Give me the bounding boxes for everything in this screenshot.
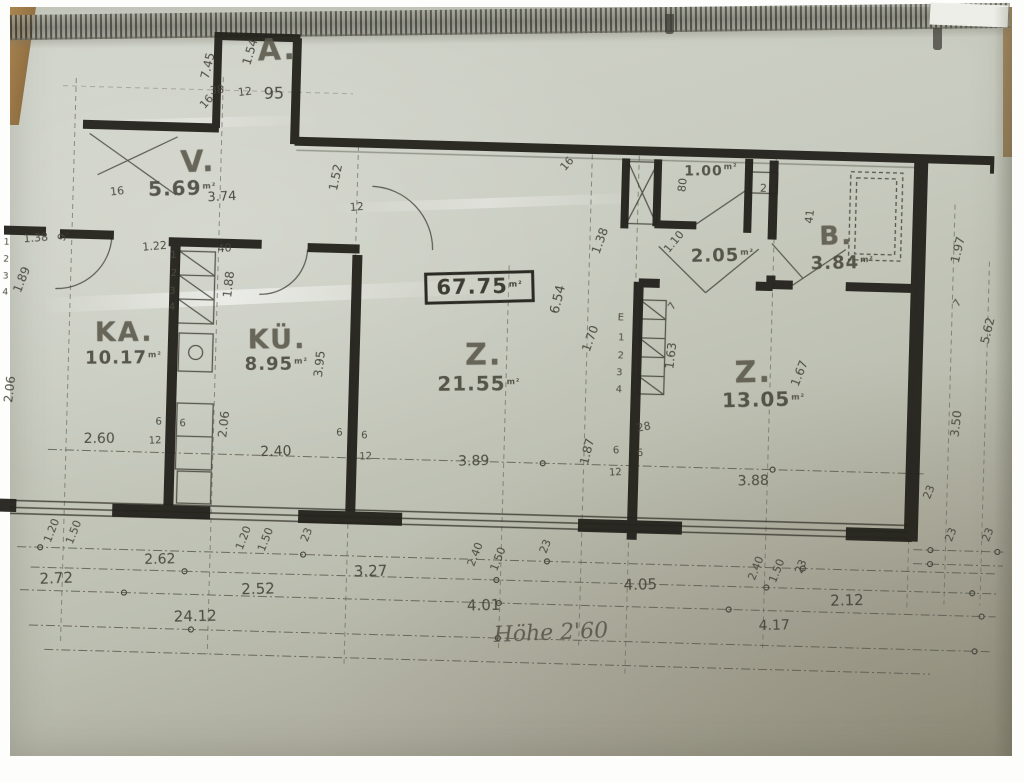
dim-4: 4 [615,385,622,395]
dim-1.97: 1.97 [949,235,967,264]
dim-2.06: 2.06 [2,375,17,403]
dim-4.05: 4.05 [623,577,657,593]
dim-12: 12 [349,201,364,213]
dim-1.70: 1.70 [580,324,600,353]
handwritten-note-höhe-2'60: Höhe 2'60 [493,620,608,647]
room-label-z.: Z. [734,358,772,389]
dim-6: 6 [637,449,644,459]
dim-9.: 9. [56,229,71,243]
dim-1.67: 1.67 [789,359,810,388]
dim-16: 16 [558,155,576,173]
dim-6: 6 [361,431,368,441]
dim-6.54: 6.54 [549,284,568,315]
dim-3: 3 [3,273,9,282]
dim-1.20: 1.20 [234,524,253,551]
dim-23: 23 [538,538,553,555]
dim-7: 7 [667,301,679,312]
dim-12: 12 [609,468,622,479]
dim-3: 3 [616,368,623,378]
dim-3.88: 3.88 [738,474,770,489]
dim-2.62: 2.62 [144,552,176,567]
dim-1.10: 1.10 [662,229,686,255]
dim-1.89: 1.89 [11,265,32,294]
room-area-3.84: 3.84m² [811,254,875,274]
dim-4: 4 [2,289,8,298]
dim-2: 2 [171,269,178,279]
dim-3.74: 3.74 [207,190,236,204]
dim-2.72: 2.72 [39,570,73,586]
room-area-10.17: 10.17m² [85,349,162,368]
dim-6: 6 [336,428,343,438]
room-area-2.05: 2.05m² [691,246,755,266]
dim-2.40: 2.40 [746,555,765,582]
dim-1.50: 1.50 [64,519,83,546]
dim-1.20: 1.20 [42,517,61,544]
dim-23: 23 [943,526,958,543]
dim-28: 28 [636,420,652,433]
dim-6: 6 [155,417,162,427]
dim-2.60: 2.60 [84,432,115,446]
dim-2: 2 [3,256,9,265]
dim-1.88: 1.88 [221,270,236,298]
dim-1: 1 [618,333,625,343]
dim-5.62: 5.62 [979,316,997,345]
floor-plan-drawing: A.V.KA.KÜ.Z.Z.B.955.69m²10.17m²8.95m²21.… [0,0,1024,782]
dim-2: 2 [617,351,624,361]
dim-7: 7 [952,298,964,309]
dim-12: 12 [149,436,162,447]
dim-4: 4 [169,303,176,313]
dim-1.38: 1.38 [23,232,48,245]
room-area-1.00: 1.00m² [684,163,737,178]
dim-24.12: 24.12 [174,609,217,625]
total-area-67.75: 67.75m² [424,270,535,305]
dim-23: 23 [793,558,808,575]
dim-95: 95 [264,85,285,101]
dim-1: 1 [4,239,10,248]
dim-2: 2 [760,183,767,194]
dim-80: 80 [676,177,689,192]
dim-1.38: 1.38 [590,226,610,255]
dim-16: 16 [110,185,125,197]
plan-labels: A.V.KA.KÜ.Z.Z.B.955.69m²10.17m²8.95m²21.… [0,0,1024,782]
dim-23: 23 [980,526,995,543]
dim-3.89: 3.89 [458,454,490,469]
dim-e: E [617,313,624,323]
dim-2.52: 2.52 [241,581,275,597]
dim-1.63: 1.63 [663,342,678,370]
dim-1.50: 1.50 [767,557,786,584]
dim-2.06: 2.06 [216,410,231,438]
room-area-21.55: 21.55m² [437,373,520,394]
dim-23: 23 [299,526,314,543]
dim-1.87: 1.87 [578,437,596,466]
dim-38: 38 [209,84,224,96]
room-area-8.95: 8.95m² [245,356,308,374]
dim-6: 6 [613,446,620,456]
dim-12: 12 [359,452,372,463]
dim-4.17: 4.17 [758,618,790,633]
dim-1.52: 1.52 [327,163,344,192]
room-label-kü.: KÜ. [248,326,307,353]
dim-12: 12 [237,86,252,98]
dim-3.95: 3.95 [312,350,327,378]
dim-2.40: 2.40 [260,444,292,459]
dim-1.54: 1.54 [240,37,259,66]
dim-2.40: 2.40 [465,541,484,568]
room-label-ka.: KA. [95,319,154,346]
dim-40: 40 [217,242,232,254]
dim-1.50: 1.50 [256,526,275,553]
room-area-5.69: 5.69m² [148,177,217,199]
room-label-z.: Z. [465,340,502,370]
dim-6: 6 [179,419,186,429]
room-label-a.: A. [257,35,297,67]
dim-4.01: 4.01 [467,598,501,614]
dim-23: 23 [921,483,936,500]
floor-plan-photo: A.V.KA.KÜ.Z.Z.B.955.69m²10.17m²8.95m²21.… [0,0,1024,768]
dim-1.22: 1.22 [142,240,167,253]
dim-41: 41 [803,209,816,224]
dim-2.12: 2.12 [830,593,864,609]
dim-3: 3 [169,287,176,297]
room-area-13.05: 13.05m² [722,388,806,410]
dim-1: 1 [170,251,177,261]
room-label-b.: B. [819,223,853,250]
dim-3.27: 3.27 [354,564,388,580]
dim-7.45: 7.45 [199,51,217,80]
dim-3.50: 3.50 [948,410,963,438]
dim-1.50: 1.50 [488,546,507,573]
room-label-v.: V. [180,147,216,178]
